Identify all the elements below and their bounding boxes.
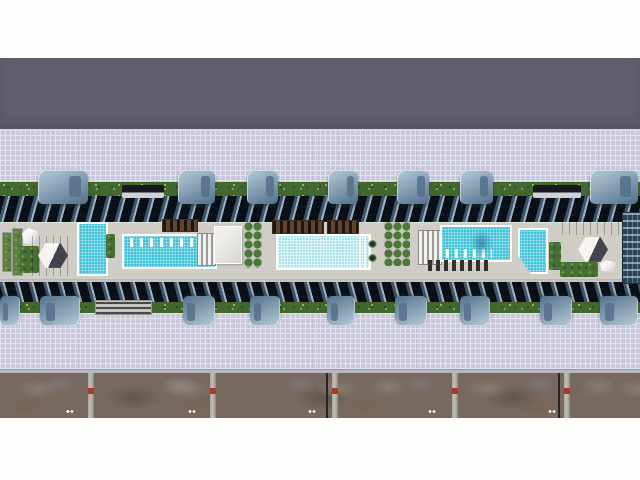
- left-planter-box-a: [2, 232, 12, 272]
- planter-grid-b: [384, 222, 410, 266]
- architectural-render: [0, 0, 640, 480]
- divider-post-2: [210, 373, 216, 418]
- tower-roof-top-6: [460, 170, 493, 204]
- right-wood-lounge: [562, 218, 626, 235]
- tower-roof-bottom-3: [183, 296, 215, 326]
- tower-core: [605, 303, 614, 321]
- left-small-garden: [106, 234, 115, 258]
- post-red-marker: [88, 388, 94, 394]
- divider-seam-1: [326, 373, 328, 418]
- right-deck-loungers: [428, 260, 490, 271]
- service-strip: [0, 373, 640, 418]
- divider-post-4: [452, 373, 458, 418]
- tower-roof-bottom-7: [460, 296, 490, 326]
- left-lap-pool-loungers-top: [130, 238, 193, 247]
- tower-core: [46, 303, 56, 321]
- left-pergola: [162, 219, 198, 232]
- tower-roof-top-2: [178, 170, 215, 204]
- tower-roof-top-7: [590, 170, 638, 204]
- tower-roof-bottom-8: [540, 296, 572, 326]
- sky-bottom: [0, 418, 640, 480]
- divider-post-5: [564, 373, 570, 418]
- tower-roof-bottom-1: [0, 296, 20, 326]
- tower-core: [417, 176, 425, 196]
- tower-core: [480, 176, 488, 196]
- tower-core: [3, 303, 8, 321]
- sky-top: [0, 0, 640, 58]
- tower-core: [620, 176, 632, 196]
- lower-bridge-walkway: [95, 300, 152, 315]
- post-red-marker: [332, 388, 338, 394]
- tower-roof-bottom-2: [40, 296, 80, 326]
- tower-roof-top-3: [247, 170, 278, 204]
- tower-core: [187, 303, 195, 321]
- palm-tree-1: [366, 238, 379, 250]
- post-red-marker: [452, 388, 458, 394]
- right-garden-b: [560, 262, 598, 277]
- ground-speck-4: [428, 410, 436, 413]
- white-pavilion: [214, 226, 242, 264]
- tower-core: [399, 303, 407, 321]
- tower-roof-top-4: [328, 170, 358, 204]
- post-red-marker: [210, 388, 216, 394]
- center-main-pool: [276, 234, 371, 270]
- tower-roof-top-5: [397, 170, 429, 204]
- tower-core: [464, 303, 471, 321]
- right-lounger-pool-palm-shadow: [471, 230, 493, 256]
- upper-road: [0, 58, 640, 131]
- ground-speck-2: [188, 410, 196, 413]
- post-red-marker: [564, 388, 570, 394]
- tower-roof-bottom-9: [600, 296, 638, 326]
- tower-roof-bottom-4: [250, 296, 280, 326]
- divider-post-3: [332, 373, 338, 418]
- ground-speck-1: [66, 410, 74, 413]
- tower-core: [331, 303, 338, 321]
- palm-tree-2: [366, 252, 379, 264]
- right-navy-tower-roof: [622, 212, 640, 284]
- entrance-canopy-1: [122, 185, 164, 198]
- entrance-canopy-2: [533, 185, 581, 198]
- tower-core: [347, 176, 354, 196]
- center-pergola-2: [327, 220, 359, 234]
- left-vertical-pool: [77, 222, 108, 276]
- tower-roof-top-1: [38, 170, 88, 204]
- ground-speck-3: [308, 410, 316, 413]
- tower-core: [201, 176, 210, 196]
- tower-core: [69, 176, 81, 196]
- tower-roof-bottom-5: [327, 296, 355, 326]
- tower-core: [266, 176, 273, 196]
- ground-speck-5: [548, 410, 556, 413]
- tower-roof-bottom-6: [395, 296, 427, 326]
- right-lounger-pool: [440, 225, 512, 262]
- center-pergola-1: [272, 220, 324, 234]
- divider-seam-2: [558, 373, 560, 418]
- planter-grid-a: [244, 222, 262, 268]
- tower-core: [544, 303, 552, 321]
- tower-core: [254, 303, 261, 321]
- divider-post-1: [88, 373, 94, 418]
